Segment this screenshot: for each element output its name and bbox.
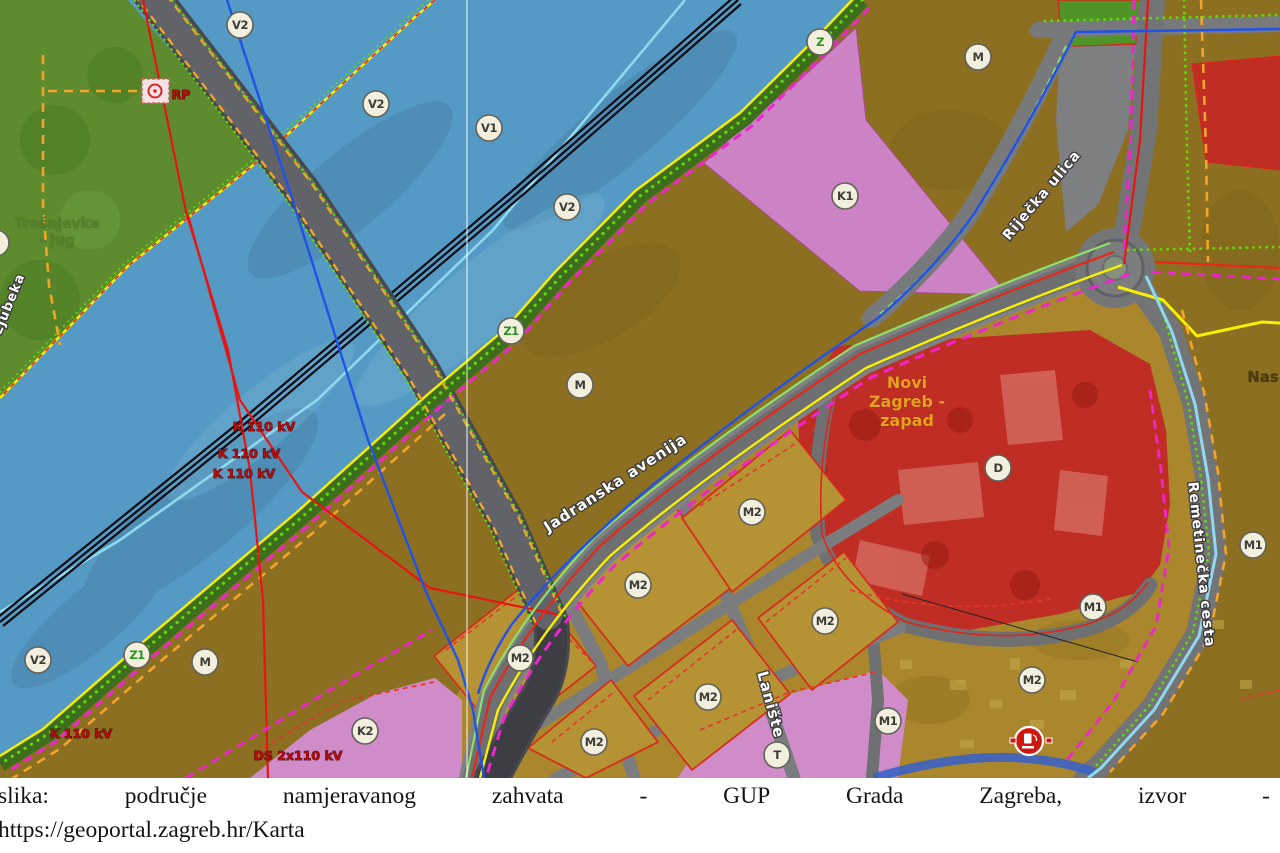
svg-text:K1: K1 bbox=[837, 189, 853, 203]
zone-badge: V2 bbox=[363, 91, 389, 117]
zone-badge: D bbox=[985, 455, 1011, 481]
figure-caption: slika:područjenamjeravanogzahvata-GUPGra… bbox=[0, 778, 1280, 853]
zone-badge: K1 bbox=[832, 183, 858, 209]
svg-text:V2: V2 bbox=[559, 200, 575, 214]
zone-badge: M2 bbox=[625, 572, 651, 598]
zone-badge: Z1 bbox=[498, 318, 524, 344]
caption-word: izvor bbox=[1138, 781, 1186, 811]
caption-word: područje bbox=[125, 781, 207, 811]
power-line-label: K 110 kV bbox=[50, 726, 113, 741]
zone-badge: M bbox=[965, 44, 991, 70]
svg-text:M1: M1 bbox=[879, 714, 898, 728]
geoportal-map[interactable]: Trešnjevka- jugNoviZagreb -zapadNas Jadr… bbox=[0, 0, 1280, 778]
zone-badge: M2 bbox=[507, 645, 533, 671]
svg-text:M: M bbox=[200, 655, 211, 669]
svg-text:Z: Z bbox=[816, 35, 824, 49]
zone-badge: M1 bbox=[1080, 594, 1106, 620]
zone-badge: M2 bbox=[812, 608, 838, 634]
caption-word: - bbox=[1262, 781, 1270, 811]
caption-word: Grada bbox=[846, 781, 903, 811]
svg-text:M2: M2 bbox=[511, 651, 529, 665]
svg-text:V2: V2 bbox=[232, 18, 248, 32]
svg-text:T: T bbox=[773, 748, 781, 762]
svg-text:M2: M2 bbox=[816, 614, 834, 628]
rp-substation-icon bbox=[142, 79, 169, 103]
svg-text:M2: M2 bbox=[743, 505, 761, 519]
svg-text:M1: M1 bbox=[1084, 600, 1103, 614]
caption-word: Zagreba, bbox=[979, 781, 1062, 811]
power-line-label: K 110 kV bbox=[218, 446, 281, 461]
svg-text:K2: K2 bbox=[357, 724, 373, 738]
zone-badge: M2 bbox=[695, 684, 721, 710]
svg-text:V2: V2 bbox=[30, 653, 46, 667]
caption-word: zahvata bbox=[492, 781, 564, 811]
svg-text:M2: M2 bbox=[699, 690, 717, 704]
document-page: Trešnjevka- jugNoviZagreb -zapadNas Jadr… bbox=[0, 0, 1280, 853]
svg-text:M2: M2 bbox=[585, 735, 603, 749]
zone-badge: M bbox=[192, 649, 218, 675]
svg-text:Z1: Z1 bbox=[503, 324, 519, 338]
caption-word: - bbox=[639, 781, 647, 811]
zone-badge: K2 bbox=[352, 718, 378, 744]
caption-word: GUP bbox=[723, 781, 770, 811]
zone-badge: M1 bbox=[1240, 532, 1266, 558]
zone-badge: V2 bbox=[554, 194, 580, 220]
power-line-label: RP bbox=[172, 87, 191, 102]
svg-text:M: M bbox=[973, 50, 984, 64]
caption-line-2[interactable]: https://geoportal.zagreb.hr/Karta bbox=[0, 815, 1280, 845]
svg-text:M1: M1 bbox=[1244, 538, 1263, 552]
zone-badge: M1 bbox=[875, 708, 901, 734]
svg-text:V1: V1 bbox=[481, 121, 497, 135]
district-name-label: Nas bbox=[1247, 368, 1279, 386]
svg-text:D: D bbox=[993, 461, 1002, 475]
svg-text:M: M bbox=[575, 378, 586, 392]
zone-badge: M2 bbox=[581, 729, 607, 755]
south-branch-road bbox=[872, 622, 878, 778]
power-line-label: DS 2x110 kV bbox=[254, 748, 343, 763]
zone-badge: M2 bbox=[739, 499, 765, 525]
svg-text:Z1: Z1 bbox=[129, 648, 145, 662]
svg-text:M2: M2 bbox=[629, 578, 647, 592]
power-line-label: K 110 kV bbox=[213, 466, 276, 481]
zone-badge: V2 bbox=[25, 647, 51, 673]
zone-badge: M bbox=[567, 372, 593, 398]
svg-text:V2: V2 bbox=[368, 97, 384, 111]
zone-badge: M2 bbox=[1019, 667, 1045, 693]
zone-badge: T bbox=[764, 742, 790, 768]
caption-word: slika: bbox=[0, 781, 49, 811]
map-svg: Trešnjevka- jugNoviZagreb -zapadNas Jadr… bbox=[0, 0, 1280, 778]
zone-badge: V2 bbox=[227, 12, 253, 38]
power-line-label: K 110 kV bbox=[233, 419, 296, 434]
zone-badge: Z1 bbox=[124, 642, 150, 668]
caption-word: namjeravanog bbox=[283, 781, 416, 811]
caption-line-1: slika:područjenamjeravanogzahvata-GUPGra… bbox=[0, 778, 1270, 811]
zone-badge: Z bbox=[807, 29, 833, 55]
svg-text:M2: M2 bbox=[1023, 673, 1041, 687]
zone-badge: V1 bbox=[476, 115, 502, 141]
